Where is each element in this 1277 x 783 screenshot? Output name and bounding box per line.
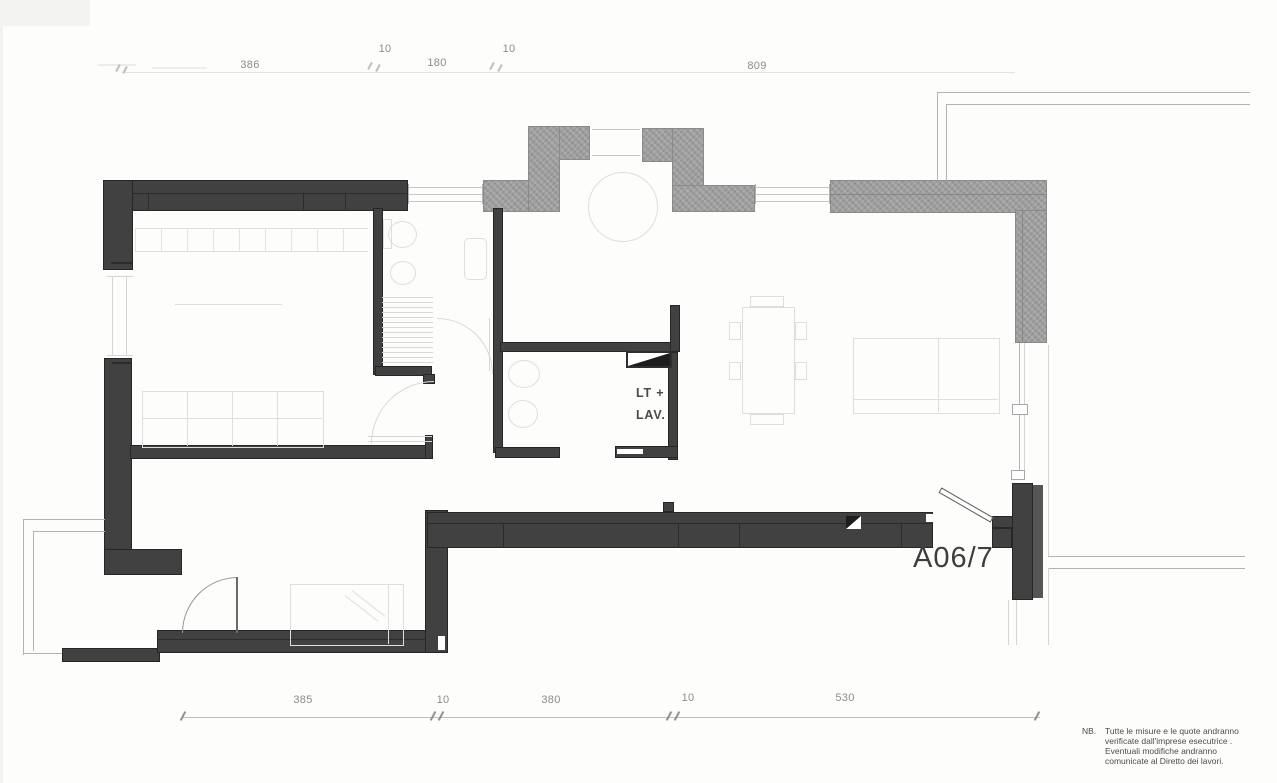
terrace-outline [946,104,947,181]
dim-label-top-1: 386 [240,59,259,71]
threshold-line [592,129,640,130]
door-arc-hall [371,381,434,444]
dim-tick [489,62,495,70]
floor-plan-sheet: 386 10 180 10 809 [0,0,1277,783]
wall-seam [503,523,504,548]
boundary-line [1048,568,1049,645]
scan-smudge [0,0,90,26]
window-jamb [408,184,409,204]
wall-seam [112,362,132,364]
terrace-outline [946,104,1250,105]
wall-existing-connector-left [528,126,560,212]
window-line [755,194,830,195]
sofa-divider [938,338,939,412]
entry-round-table [588,172,658,242]
window-line [408,201,483,202]
door-leaf-bedroom2 [236,577,238,633]
bidet [390,261,416,285]
wall-notch-top [663,502,674,512]
wall-seam [345,193,346,211]
note-line-4: comunicate al Diretto dei lavori. [1105,756,1224,767]
wall-notch [926,514,933,522]
dim-tick [666,711,672,721]
flue-marker [846,516,861,529]
dim-label-bottom-2: 10 [437,694,450,706]
window-line [408,187,483,188]
wall-existing-band-right [672,185,755,212]
door-arc-bathroom [437,318,493,374]
dim-label-top-3: 180 [427,57,446,69]
terrace-outline [33,531,105,532]
terrace-outline [937,92,938,181]
wall-seam [148,193,149,211]
dim-tick [375,64,381,72]
bed [290,584,404,646]
chair [729,322,741,340]
window-symbol [1011,470,1025,480]
chair [750,296,784,307]
kitchen-table-line [175,304,282,305]
dim-label-top-5: 809 [747,60,766,72]
dim-label-bottom-1: 385 [293,694,312,706]
note-line-1: Tutte le misure e le quote andranno [1105,726,1239,737]
window-jamb [829,184,830,204]
laundry-basin [508,360,540,388]
dim-label-bottom-5: 530 [835,692,854,704]
dim-tick [180,711,186,721]
wall-laundry-bottom-left [495,447,560,458]
duct-marker-triangle [628,353,670,366]
corridor-line [1048,556,1245,557]
dim-label-top-2: 10 [379,43,392,55]
sink [464,238,487,280]
wall-existing-leg-right [1015,210,1047,343]
terrace-outline [33,531,34,651]
terrace-outline [23,519,105,520]
window-line [112,276,113,356]
window-jamb [755,184,756,204]
duct-marker [626,351,672,368]
sofa [853,338,1000,414]
unit-label: A06/7 [913,542,994,575]
window-line [755,187,830,188]
window-jamb [107,276,133,277]
wall-left-lower [104,358,132,550]
wall-seam [830,194,1047,195]
scan-edge [0,0,3,783]
wall-laundry-right [668,352,678,460]
wardrobe-divider [187,391,188,446]
window-line [126,276,127,356]
boundary-line [1008,600,1009,645]
door-arc-bedroom2 [182,577,238,633]
shower-hatch [382,297,433,367]
dim-label-bottom-4: 10 [682,692,695,704]
wall-left-upper [103,180,133,270]
wall-entry-block [992,528,1012,548]
dimension-line-top [125,72,1015,73]
chair [750,414,784,425]
dim-tick [367,62,373,70]
window-jamb [107,355,133,356]
wall-seam [303,193,304,211]
note-prefix: NB. [1082,726,1096,737]
wall-entry-pier [1012,483,1033,600]
window-jamb [482,184,483,204]
wall-entry-pier-strip [1033,485,1043,598]
terrace-outline [23,653,65,654]
terrace-outline [937,92,1250,93]
utility-room-label-line2: LAV. [636,408,666,422]
kitchen-counter-line [135,251,368,252]
window-line [1019,343,1020,405]
wall-hall-vertical [493,208,503,453]
terrace-outline [23,519,24,655]
flue-marker-triangle [846,516,861,529]
wardrobe [142,391,324,448]
wall-seam [1022,210,1023,343]
pocket-door-slot [617,449,643,454]
wall-seam [111,262,133,264]
wall-seam [901,523,902,548]
window-line [1024,413,1025,471]
dim-tick [430,711,436,721]
utility-room-label-line1: LT + [636,386,664,400]
scan-mark [152,67,207,69]
wardrobe-divider [277,391,278,446]
dining-table [742,307,795,414]
dim-tick [1034,711,1040,721]
kitchen-counter-units [135,228,368,251]
dimension-line-bottom [183,717,1040,718]
threshold-line [592,155,640,156]
sofa-seat-line [853,399,998,400]
wall-notch [438,636,445,650]
window-line [408,194,483,195]
window-line [755,201,830,202]
entry-door-leaf [939,487,994,522]
wall-seam [739,523,740,548]
wall-existing-band-main [830,180,1047,213]
note-line-3: Eventuali modifiche andranno [1105,746,1217,757]
toilet-tank [383,219,392,249]
wall-terrace-parapet [62,648,160,662]
dim-tick [497,64,503,72]
dim-tick [674,711,680,721]
bed-headboard-line [388,584,389,644]
dim-label-top-4: 10 [503,43,516,55]
note-line-2: verificate dall'imprese esecutrice . [1105,736,1232,747]
chair [795,322,807,340]
wardrobe-divider [232,391,233,446]
wall-laundry-stub [670,305,680,352]
dim-label-bottom-3: 380 [541,694,560,706]
boundary-line [1016,600,1017,645]
window-line [1019,413,1020,471]
boundary-line [1048,345,1049,556]
chair [729,362,741,380]
corridor-line [1048,568,1245,569]
window-symbol [1012,404,1028,415]
wall-seam [678,523,679,548]
laundry-basin [508,400,538,428]
dim-tick [438,711,444,721]
chair [795,362,807,380]
wall-left-step [104,549,182,575]
window-line [1024,343,1025,405]
toilet [388,221,417,248]
